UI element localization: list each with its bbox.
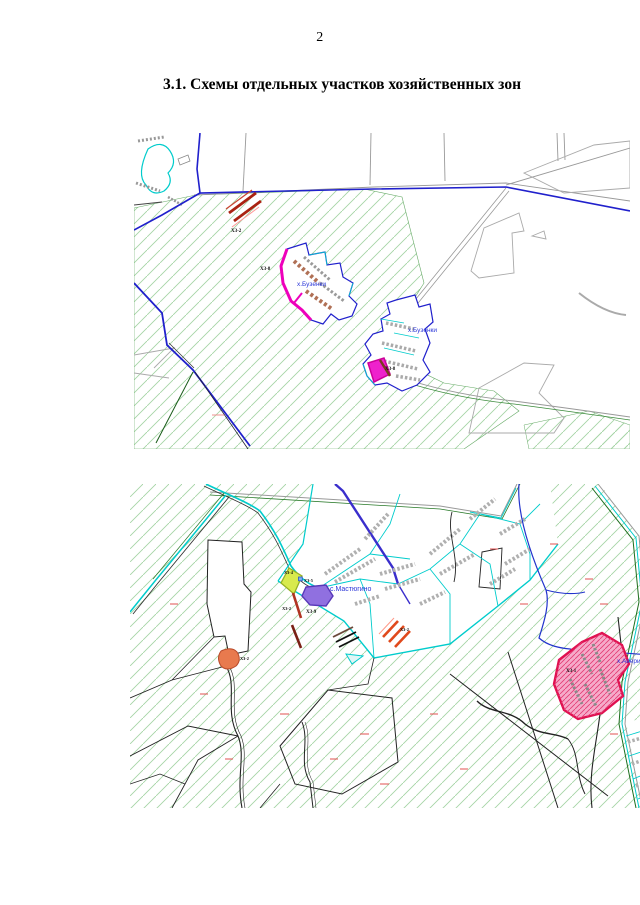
settlement-label: х.Бузенки [297,281,326,288]
farmland-hatch-layer [130,484,640,808]
top-left-features-layer [134,137,190,205]
settlement-label: х.Бузенки [408,327,437,334]
zone-label: ХЗ-9 [306,610,317,615]
zone-label: ХЗ-2 [400,627,409,632]
zone-label: ХЗ-4 [284,570,294,575]
page-number: 2 [0,30,640,46]
zone-label: ХЗ-2 [231,229,242,234]
settlement-label: х.Аверино [617,658,640,665]
zone-label: ХЗ-2 [240,656,249,661]
document-page: 2 3.1. Схемы отдельных участков хозяйств… [0,0,640,905]
settlement-label: с.Мастюгино [330,586,372,593]
map-2-canvas: ХЗ-4 ХЗ-5 ХЗ-9 ХЗ-2 ХЗ-2 ХЗ-2 ХЗ-1 с.Мас… [130,484,640,808]
zone-x3-5-area [299,577,303,581]
zone-label: ХЗ-2 [282,606,291,611]
zone-x3-2-blob [219,649,240,669]
section-title: 3.1. Схемы отдельных участков хозяйствен… [22,76,640,94]
zone-label: ХЗ-5 [304,578,313,583]
map-2-scheme: ХЗ-4 ХЗ-5 ХЗ-9 ХЗ-2 ХЗ-2 ХЗ-2 ХЗ-1 с.Мас… [130,484,640,808]
zone-label: ХЗ-8 [385,367,396,372]
map-1-scheme: ХЗ-2 ХЗ-8 ХЗ-8 х.Бузенки х.Бузенки [134,133,630,449]
zone-label: ХЗ-1 [566,669,577,674]
pond-outline [141,144,173,193]
zone-label: ХЗ-8 [260,267,271,272]
map-1-canvas: ХЗ-2 ХЗ-8 ХЗ-8 х.Бузенки х.Бузенки [134,133,630,449]
